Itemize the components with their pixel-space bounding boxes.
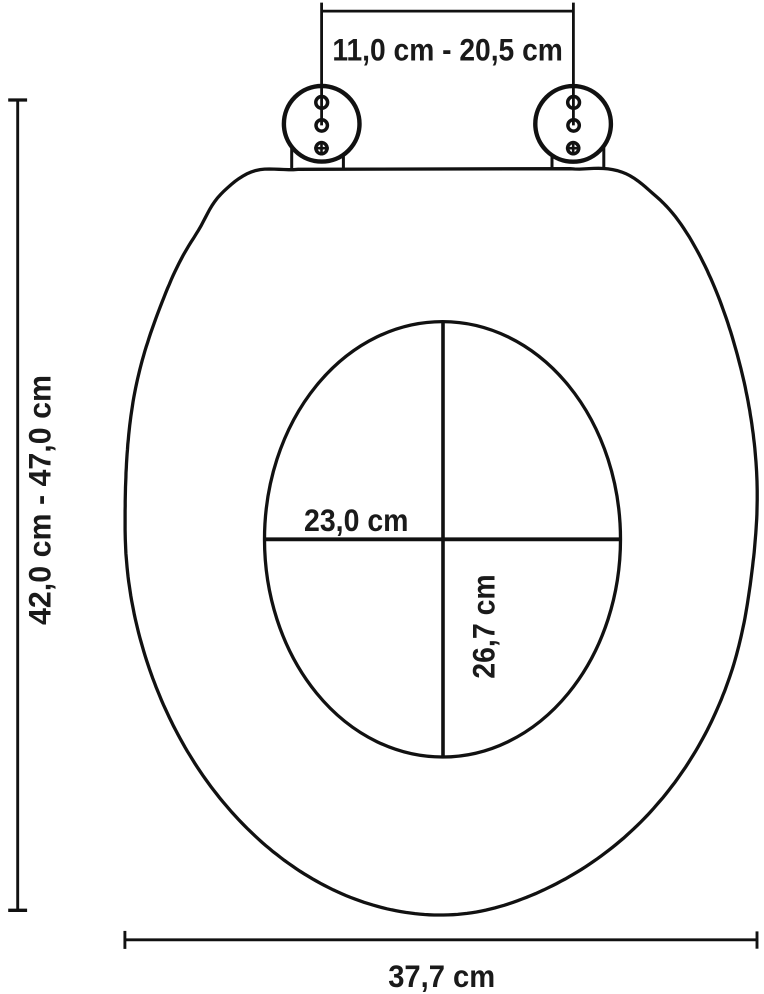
svg-text:26,7 cm: 26,7 cm (465, 574, 501, 679)
svg-text:11,0 cm - 20,5 cm: 11,0 cm - 20,5 cm (332, 32, 563, 68)
svg-text:42,0 cm - 47,0 cm: 42,0 cm - 47,0 cm (22, 375, 58, 625)
svg-text:37,7 cm: 37,7 cm (388, 958, 495, 994)
svg-text:23,0 cm: 23,0 cm (304, 502, 409, 538)
